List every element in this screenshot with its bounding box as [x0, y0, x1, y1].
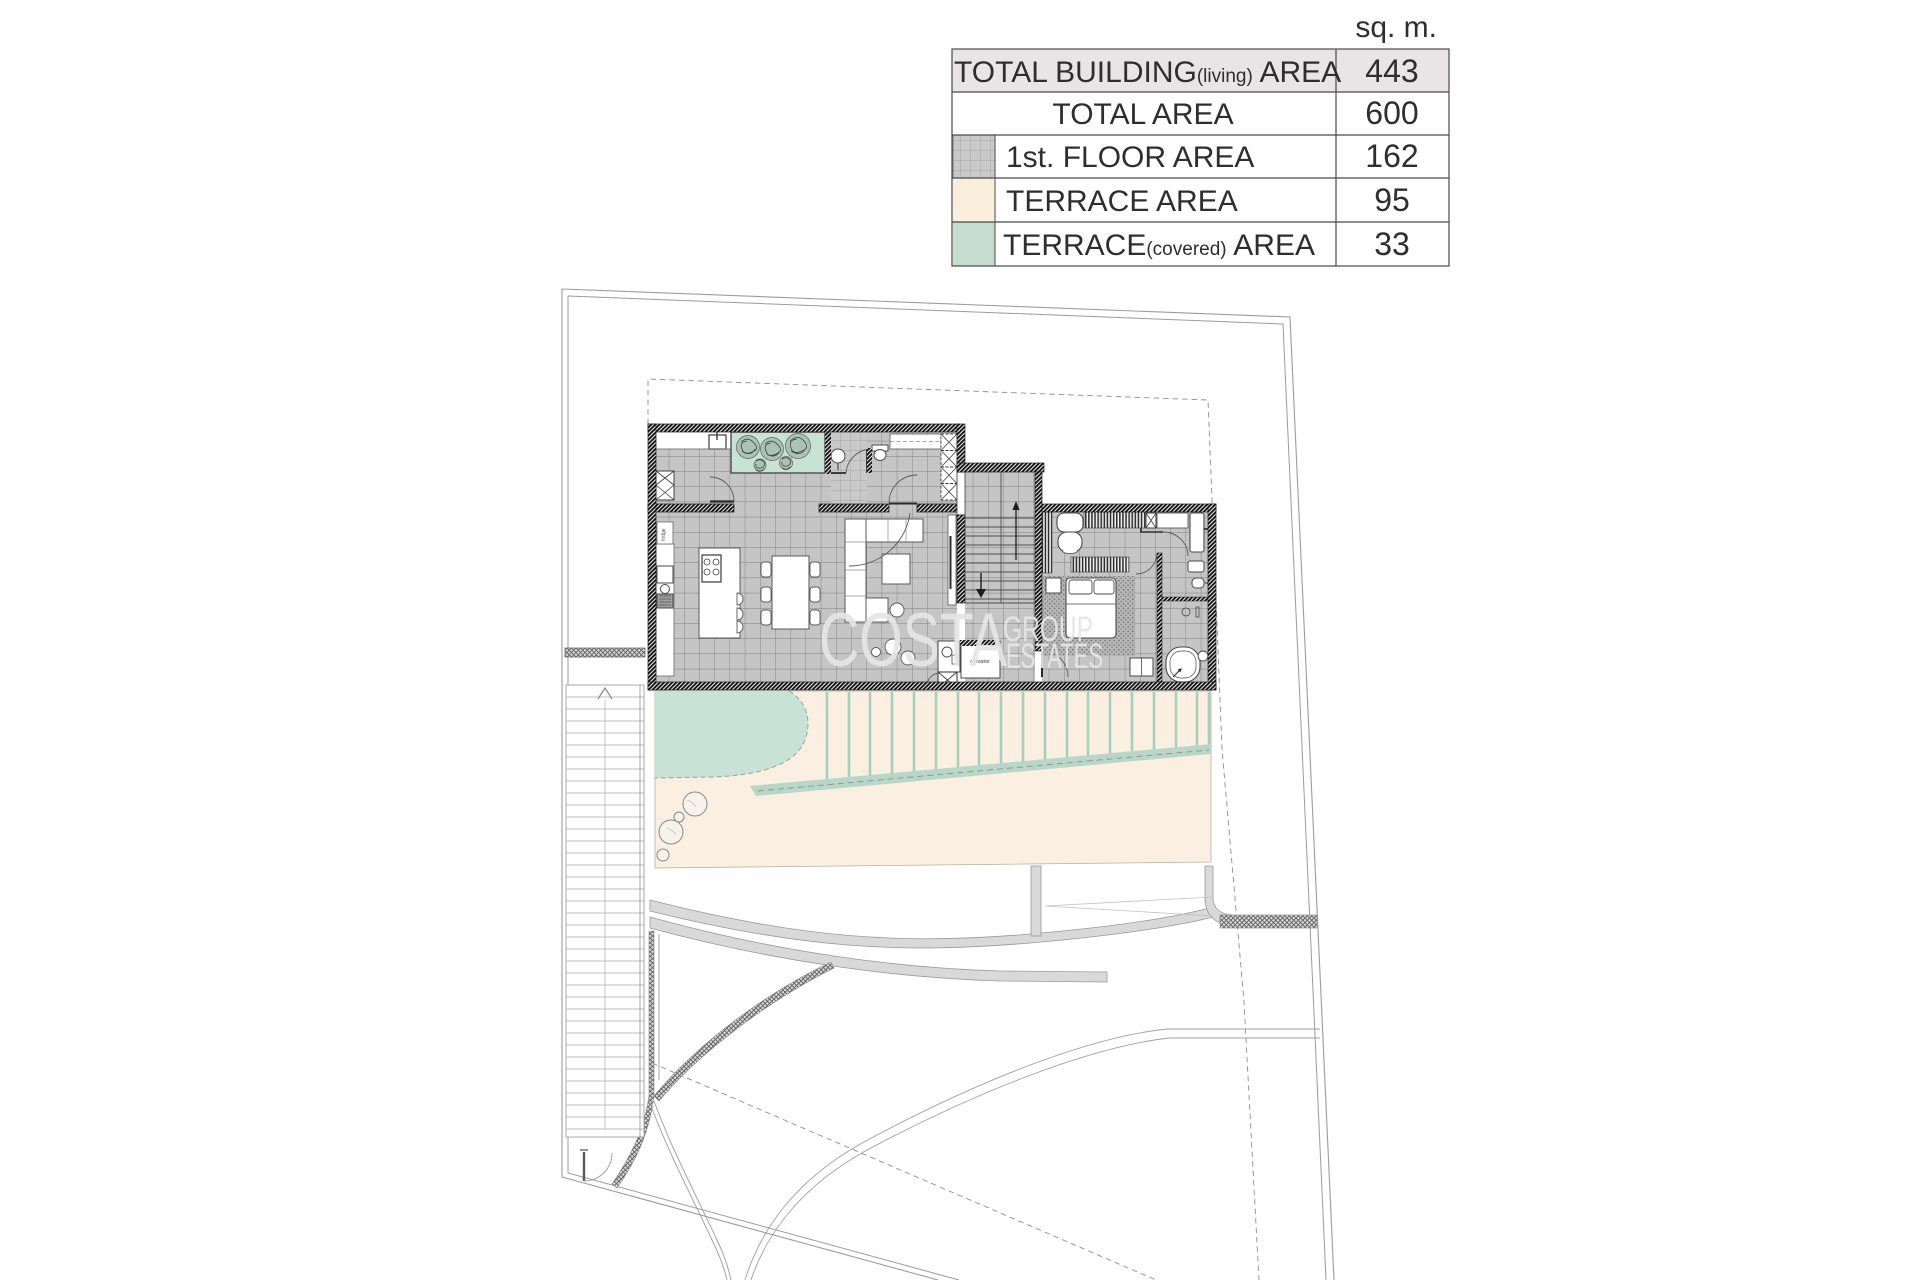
svg-text:162: 162 — [1365, 138, 1418, 174]
svg-text:33: 33 — [1374, 226, 1410, 262]
svg-text:sq. m.: sq. m. — [1355, 11, 1437, 44]
svg-text:TERRACE AREA: TERRACE AREA — [1006, 185, 1238, 218]
svg-text:fridge: fridge — [661, 528, 667, 541]
svg-text:443: 443 — [1365, 53, 1418, 89]
svg-text:ESTATES: ESTATES — [1006, 637, 1103, 676]
svg-text:95: 95 — [1374, 182, 1410, 218]
svg-text:600: 600 — [1365, 95, 1418, 131]
svg-text:TOTAL AREA: TOTAL AREA — [1052, 98, 1233, 131]
svg-text:TOTAL BUILDING(living) AREA: TOTAL BUILDING(living) AREA — [954, 56, 1341, 89]
svg-text:1st. FLOOR AREA: 1st. FLOOR AREA — [1006, 141, 1254, 174]
svg-text:COSTA: COSTA — [819, 598, 1007, 683]
